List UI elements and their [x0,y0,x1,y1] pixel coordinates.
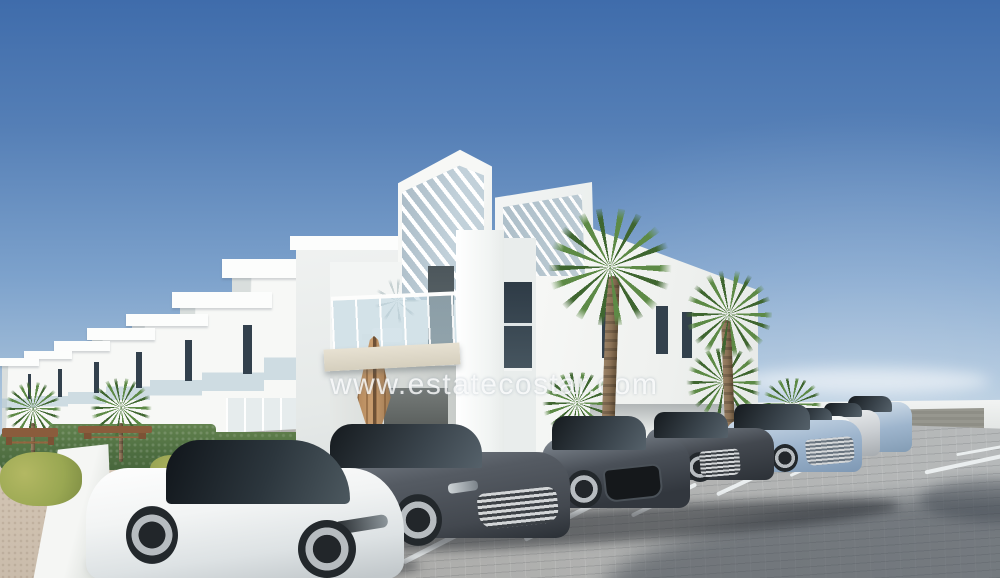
car-wheel [298,520,356,578]
car-window [330,424,482,468]
car-window [654,412,728,438]
car-window [552,416,646,450]
car-wheel [566,470,602,508]
car-wheel [126,506,178,564]
palm-fronds [686,270,772,358]
property-render-photo: www.estatecostar.com [0,0,1000,578]
car-wheel [772,444,798,472]
picnic-table [78,426,152,433]
car-window [734,404,810,430]
car-grille [805,436,855,466]
car-grille [699,448,741,477]
window [504,282,532,371]
palm-fronds [548,208,672,326]
car-windshield [166,440,350,504]
palm-tree [548,208,672,440]
picnic-table [2,428,58,437]
car-grille [602,463,663,503]
garden-bushes [0,452,82,506]
